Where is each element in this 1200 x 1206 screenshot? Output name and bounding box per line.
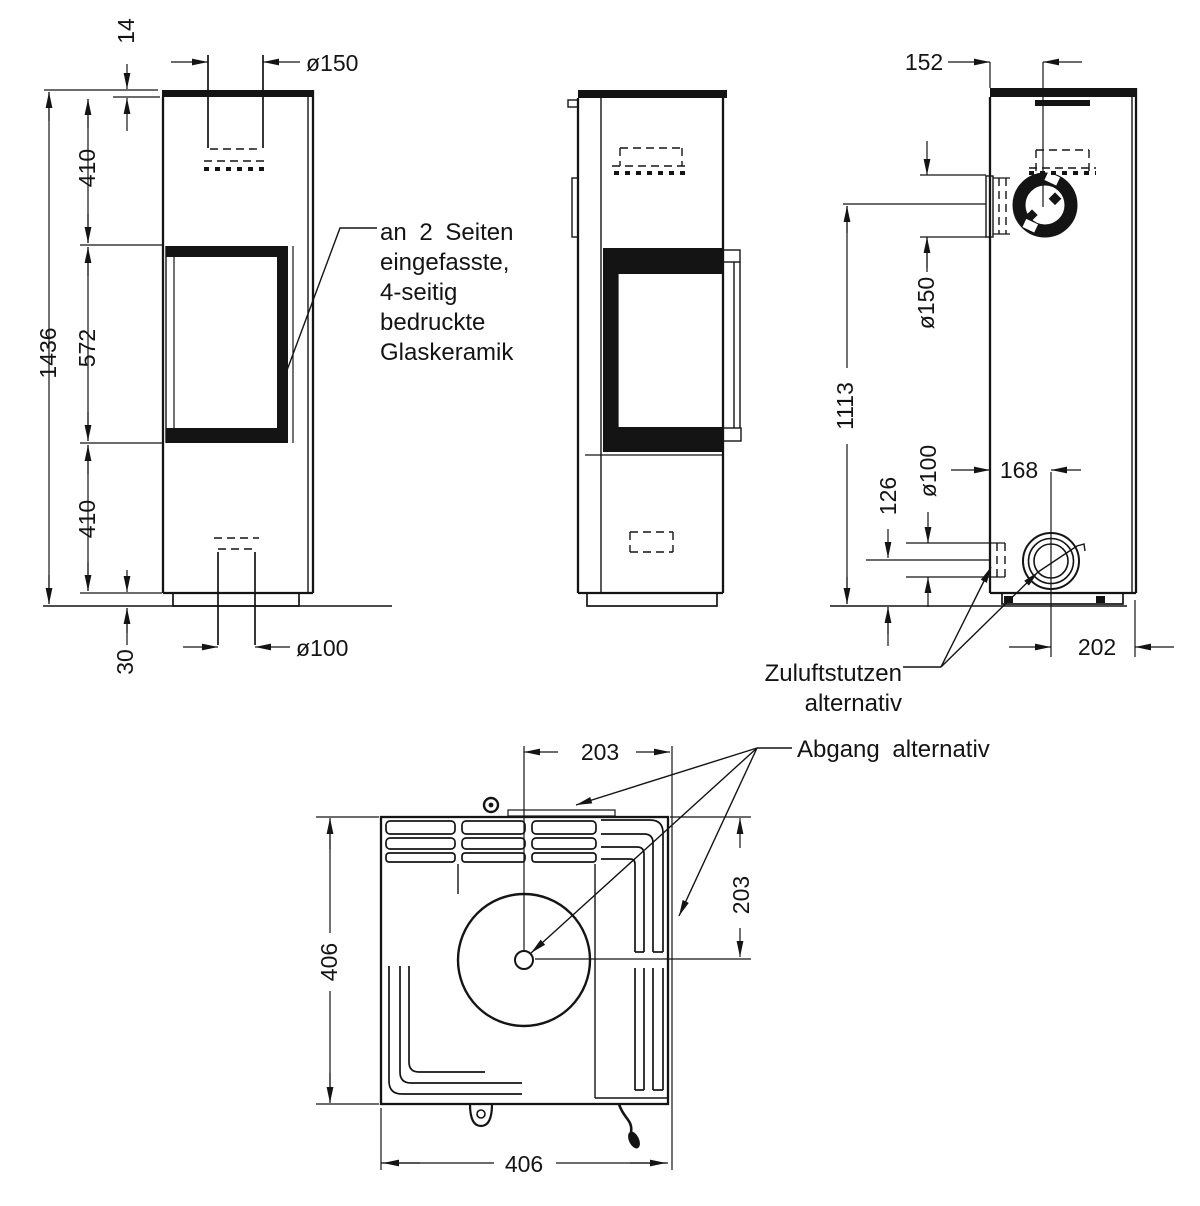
side-door bbox=[585, 248, 741, 455]
dim-air-depth-offset: 202 bbox=[1009, 600, 1174, 660]
dim-label-14: 14 bbox=[113, 18, 139, 44]
dim-air-inlet-diameter: ø100 bbox=[183, 635, 348, 661]
glass-annotation: an 2 Seiten eingefasste, 4-seitig bedruc… bbox=[283, 219, 514, 381]
rear-view: 152 ø150 1113 ø100 bbox=[765, 49, 1174, 717]
glass-note-line5: Glaskeramik bbox=[380, 339, 514, 366]
side-view bbox=[568, 90, 741, 606]
dim-flue-offset-x: 203 bbox=[524, 739, 672, 1170]
air-note-line1: Zuluftstutzen bbox=[765, 660, 902, 687]
dim-label-152: 152 bbox=[905, 49, 943, 75]
dim-label-202: 202 bbox=[1078, 634, 1116, 660]
air-note-line2: alternativ bbox=[805, 690, 902, 717]
front-glass-door bbox=[166, 246, 293, 443]
stove-dimension-drawing: 14 410 572 410 1436 bbox=[0, 0, 1200, 1206]
dim-width: 406 bbox=[381, 1108, 668, 1177]
top-damper-knob bbox=[484, 798, 498, 812]
top-corner-bracket-left bbox=[389, 966, 522, 1094]
power-cord bbox=[619, 1104, 642, 1150]
dim-label-203-right: 203 bbox=[728, 876, 754, 914]
dim-label-1113: 1113 bbox=[832, 382, 858, 430]
dim-label-168: 168 bbox=[1000, 457, 1038, 483]
dim-label-406-bottom: 406 bbox=[505, 1151, 543, 1177]
dim-label-30: 30 bbox=[112, 649, 138, 675]
top-view: 203 203 406 406 bbox=[316, 736, 990, 1177]
dim-label-1436: 1436 bbox=[35, 327, 61, 378]
side-air-duct-hidden bbox=[630, 532, 673, 552]
side-flue-collar-hidden bbox=[612, 148, 690, 173]
dim-label-410-upper: 410 bbox=[74, 149, 100, 187]
dim-side-flue-diameter: ø150 bbox=[913, 141, 986, 329]
dim-depth: 406 bbox=[316, 817, 379, 1104]
rear-outline bbox=[830, 88, 1137, 606]
dim-glass-section: 572 bbox=[74, 247, 162, 443]
top-front-foot bbox=[470, 1104, 492, 1126]
flue-annotation: Abgang alternativ bbox=[531, 736, 990, 953]
front-flue-collar bbox=[204, 55, 267, 169]
drawing-page: 14 410 572 410 1436 bbox=[0, 0, 1200, 1206]
dim-upper-section: 410 bbox=[74, 99, 162, 245]
dim-lower-section: 410 bbox=[74, 445, 162, 593]
dim-flue-diameter: ø150 bbox=[171, 50, 358, 76]
dim-plate-thickness: 14 bbox=[113, 18, 160, 131]
dim-label-203-top: 203 bbox=[581, 739, 619, 765]
dim-label-126: 126 bbox=[875, 477, 901, 515]
rear-air-inlet bbox=[997, 533, 1079, 589]
dim-label-d150-front: ø150 bbox=[306, 50, 358, 76]
glass-note-line2: eingefasste, bbox=[380, 249, 509, 276]
dim-air-center-height: 126 bbox=[866, 477, 990, 646]
dim-label-d100-rear: ø100 bbox=[915, 445, 941, 497]
top-vent-grille-rear bbox=[386, 821, 596, 862]
glass-note-line4: bedruckte bbox=[380, 309, 485, 336]
front-air-duct-hidden bbox=[214, 538, 259, 645]
dim-label-d100-front: ø100 bbox=[296, 635, 348, 661]
dim-flue-center-height: 1113 bbox=[832, 204, 986, 604]
dim-label-406-left: 406 bbox=[316, 943, 342, 981]
dim-label-d150-rear: ø150 bbox=[913, 277, 939, 329]
dim-label-410-lower: 410 bbox=[74, 500, 100, 538]
front-view: 14 410 572 410 1436 bbox=[35, 18, 514, 675]
glass-note-line1: an 2 Seiten bbox=[380, 219, 513, 246]
dim-label-572: 572 bbox=[74, 329, 100, 367]
glass-note-line3: 4-seitig bbox=[380, 279, 457, 306]
rear-flue-outlet bbox=[1019, 150, 1096, 232]
dim-plinth-height: 30 bbox=[112, 570, 138, 675]
flue-note: Abgang alternativ bbox=[797, 736, 990, 763]
